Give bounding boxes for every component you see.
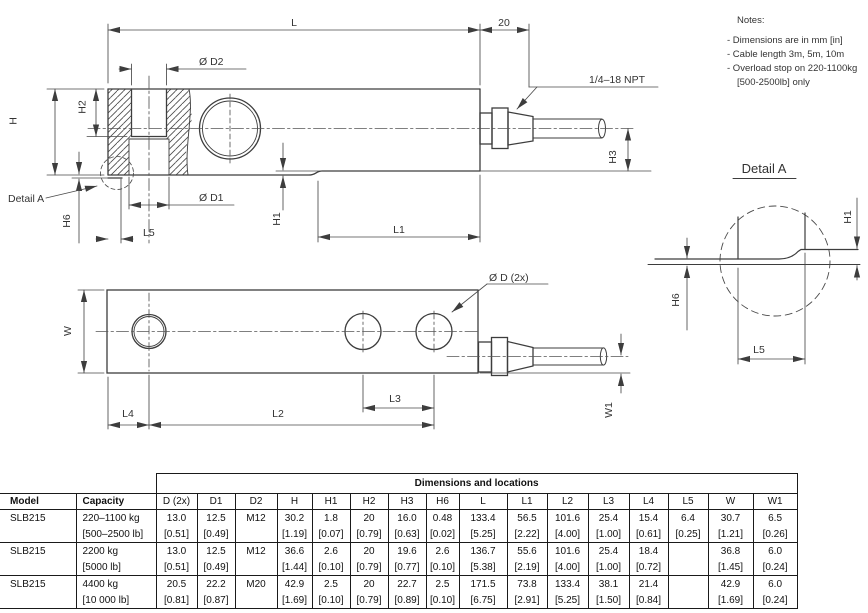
- cell: 20: [350, 510, 388, 527]
- table-group-header-row: Dimensions and locations: [0, 474, 797, 494]
- cell: 30.2: [277, 510, 312, 527]
- col-header: L: [459, 494, 507, 510]
- cell: 2.5: [426, 576, 459, 593]
- dimension-table: Dimensions and locations Model Capacity …: [0, 473, 798, 609]
- cell: 2.6: [426, 543, 459, 560]
- npt-label: 1/4–18 NPT: [589, 74, 646, 86]
- cell: 6.4: [668, 510, 708, 527]
- notes-line-2: - Cable length 3m, 5m, 10m: [727, 49, 844, 60]
- cell: [0.24]: [753, 592, 797, 609]
- detail-a-ref-label: Detail A: [8, 193, 44, 205]
- cell: [0.79]: [350, 592, 388, 609]
- cell: 56.5: [507, 510, 547, 527]
- detail-a-profile: [648, 213, 860, 265]
- dim-label-l4: L4: [122, 408, 134, 420]
- col-header: L1: [507, 494, 547, 510]
- cell: 6.0: [753, 576, 797, 593]
- cell: [0.72]: [629, 559, 668, 576]
- cell-model: SLB215: [0, 576, 76, 593]
- cell: 21.4: [629, 576, 668, 593]
- dimensions-side: [46, 24, 658, 243]
- table-row: SLB215 220–1100 kg 13.0 12.5 M12 30.2 1.…: [0, 510, 797, 527]
- cell-model: [0, 592, 76, 609]
- dim-label-20: 20: [498, 17, 510, 29]
- col-header: L5: [668, 494, 708, 510]
- cell: 25.4: [588, 510, 629, 527]
- dim-label-l3: L3: [389, 393, 401, 405]
- cell-capacity: 4400 kg: [76, 576, 156, 593]
- cell: 12.5: [197, 543, 235, 560]
- col-header: H6: [426, 494, 459, 510]
- notes-block: Notes: - Dimensions are in mm [in] - Cab…: [727, 15, 857, 88]
- col-header: W1: [753, 494, 797, 510]
- dim-label-d2: Ø D2: [199, 56, 224, 68]
- dim-label-h6: H6: [61, 214, 73, 228]
- col-header: L2: [547, 494, 588, 510]
- cell: [1.44]: [277, 559, 312, 576]
- cell: 20.5: [156, 576, 197, 593]
- detail-dim-h1: H1: [842, 210, 854, 224]
- cell: 25.4: [588, 543, 629, 560]
- cell: 38.1: [588, 576, 629, 593]
- cell: 136.7: [459, 543, 507, 560]
- cell: 30.7: [708, 510, 753, 527]
- cell: [0.10]: [426, 559, 459, 576]
- notes-line-4: [500-2500lb] only: [737, 77, 810, 88]
- detail-a-view: Detail A H1 H6 L5: [648, 161, 860, 364]
- cell-capacity: 220–1100 kg: [76, 510, 156, 527]
- cell: 18.4: [629, 543, 668, 560]
- col-header: D1: [197, 494, 235, 510]
- dim-label-h3: H3: [607, 150, 619, 164]
- cell: 101.6: [547, 510, 588, 527]
- dim-label-w: W: [62, 326, 74, 336]
- col-header: W: [708, 494, 753, 510]
- cell: [5.25]: [547, 592, 588, 609]
- detail-a-boundary: [720, 206, 830, 316]
- detail-a-title: Detail A: [742, 161, 787, 176]
- cell: [235, 592, 277, 609]
- cell-capacity: [500–2500 lb]: [76, 526, 156, 543]
- cell: [5.38]: [459, 559, 507, 576]
- dim-label-w1: W1: [603, 402, 615, 418]
- cell: 15.4: [629, 510, 668, 527]
- technical-drawing: L 20 Ø D2 1/4–18 NPT H H2 Detail A Ø D1 …: [0, 0, 868, 470]
- cell: 1.8: [312, 510, 350, 527]
- cell: [1.69]: [277, 592, 312, 609]
- cell: 19.6: [388, 543, 426, 560]
- dim-label-l1: L1: [393, 224, 405, 236]
- cell: [0.84]: [629, 592, 668, 609]
- cell: [0.79]: [350, 559, 388, 576]
- table-row: SLB215 4400 kg 20.5 22.2 M20 42.9 2.5 20…: [0, 576, 797, 593]
- cell: [0.24]: [753, 559, 797, 576]
- col-header: D2: [235, 494, 277, 510]
- detail-dim-l5: L5: [753, 344, 765, 356]
- cell: [0.07]: [312, 526, 350, 543]
- cell: 20: [350, 576, 388, 593]
- cell: [1.69]: [708, 592, 753, 609]
- col-header: H: [277, 494, 312, 510]
- cell: [0.10]: [312, 559, 350, 576]
- cell: 42.9: [277, 576, 312, 593]
- cell: [2.19]: [507, 559, 547, 576]
- cell: [0.49]: [197, 559, 235, 576]
- top-view: W Ø D (2x) L4 L2 L3 W1: [62, 272, 630, 429]
- cell: 133.4: [547, 576, 588, 593]
- cell: [1.00]: [588, 526, 629, 543]
- cell: [4.00]: [547, 559, 588, 576]
- cell: 12.5: [197, 510, 235, 527]
- col-header: H1: [312, 494, 350, 510]
- cell: [1.00]: [588, 559, 629, 576]
- cell: 13.0: [156, 510, 197, 527]
- cell: [5.25]: [459, 526, 507, 543]
- cell: 16.0: [388, 510, 426, 527]
- cell: 13.0: [156, 543, 197, 560]
- hatch-right: [167, 89, 193, 175]
- cell: [2.22]: [507, 526, 547, 543]
- cell: [6.75]: [459, 592, 507, 609]
- cell: [0.79]: [350, 526, 388, 543]
- cell: 36.6: [277, 543, 312, 560]
- cell: M12: [235, 510, 277, 527]
- col-header: H3: [388, 494, 426, 510]
- cell: [4.00]: [547, 526, 588, 543]
- cell: [668, 543, 708, 560]
- cell: [1.21]: [708, 526, 753, 543]
- cell: [668, 576, 708, 593]
- cell: 42.9: [708, 576, 753, 593]
- side-view: L 20 Ø D2 1/4–18 NPT H H2 Detail A Ø D1 …: [8, 17, 659, 243]
- cell: 133.4: [459, 510, 507, 527]
- dim-label-h1: H1: [271, 212, 283, 226]
- centerlines-top: [96, 293, 628, 371]
- top-view-outline: [107, 290, 607, 376]
- table-header-row: Model Capacity D (2x) D1 D2 H H1 H2 H3 H…: [0, 494, 797, 510]
- group-header: Dimensions and locations: [156, 474, 797, 494]
- cell: [0.25]: [668, 526, 708, 543]
- notes-line-3: - Overload stop on 220-1100kg: [727, 63, 857, 74]
- cell: [0.87]: [197, 592, 235, 609]
- cell: [0.51]: [156, 526, 197, 543]
- cell: 101.6: [547, 543, 588, 560]
- cell: [1.19]: [277, 526, 312, 543]
- cell: 6.5: [753, 510, 797, 527]
- detail-dim-h6: H6: [670, 293, 682, 307]
- cell: [0.10]: [426, 592, 459, 609]
- cell-capacity: [5000 lb]: [76, 559, 156, 576]
- hatch-left: [108, 89, 132, 175]
- cell: [0.10]: [312, 592, 350, 609]
- notes-line-1: - Dimensions are in mm [in]: [727, 35, 843, 46]
- cell: [0.02]: [426, 526, 459, 543]
- cell: [668, 592, 708, 609]
- dim-label-h: H: [8, 117, 20, 125]
- cell-model: SLB215: [0, 543, 76, 560]
- dim-label-l: L: [291, 17, 297, 29]
- cell: 36.8: [708, 543, 753, 560]
- cell-model: SLB215: [0, 510, 76, 527]
- cell-model: [0, 559, 76, 576]
- table-row: [500–2500 lb] [0.51] [0.49] [1.19] [0.07…: [0, 526, 797, 543]
- cell: [2.91]: [507, 592, 547, 609]
- cell: [0.26]: [753, 526, 797, 543]
- cell: 171.5: [459, 576, 507, 593]
- cell: 6.0: [753, 543, 797, 560]
- dim-label-l5: L5: [143, 227, 155, 239]
- col-header-capacity: Capacity: [76, 494, 156, 510]
- cell: [1.50]: [588, 592, 629, 609]
- cell: 22.2: [197, 576, 235, 593]
- cell: [235, 559, 277, 576]
- cell-model: [0, 526, 76, 543]
- cell: 0.48: [426, 510, 459, 527]
- cell: 20: [350, 543, 388, 560]
- col-header: H2: [350, 494, 388, 510]
- cell: 2.5: [312, 576, 350, 593]
- dim-label-l2: L2: [272, 408, 284, 420]
- dim-label-h2: H2: [77, 100, 89, 114]
- cell: [0.61]: [629, 526, 668, 543]
- col-header: D (2x): [156, 494, 197, 510]
- cell: 55.6: [507, 543, 547, 560]
- cell-capacity: 2200 kg: [76, 543, 156, 560]
- cell: 73.8: [507, 576, 547, 593]
- dim-label-d1: Ø D1: [199, 192, 224, 204]
- cell: 22.7: [388, 576, 426, 593]
- cell: [1.45]: [708, 559, 753, 576]
- cell-capacity: [10 000 lb]: [76, 592, 156, 609]
- col-header-model: Model: [0, 494, 76, 510]
- cell: [235, 526, 277, 543]
- datasheet-page: L 20 Ø D2 1/4–18 NPT H H2 Detail A Ø D1 …: [0, 0, 868, 613]
- table-row: SLB215 2200 kg 13.0 12.5 M12 36.6 2.6 20…: [0, 543, 797, 560]
- cell: [0.49]: [197, 526, 235, 543]
- cell: [0.81]: [156, 592, 197, 609]
- dimensions-top: [78, 284, 630, 429]
- cell: 2.6: [312, 543, 350, 560]
- cell: [668, 559, 708, 576]
- table-row: [10 000 lb] [0.81] [0.87] [1.69] [0.10] …: [0, 592, 797, 609]
- dim-label-d: Ø D (2x): [489, 272, 529, 284]
- cell: [0.51]: [156, 559, 197, 576]
- table-row: [5000 lb] [0.51] [0.49] [1.44] [0.10] [0…: [0, 559, 797, 576]
- cell: M12: [235, 543, 277, 560]
- cell: M20: [235, 576, 277, 593]
- col-header: L3: [588, 494, 629, 510]
- cell: [0.77]: [388, 559, 426, 576]
- detail-a-dims: [687, 198, 857, 364]
- cell: [0.63]: [388, 526, 426, 543]
- col-header: L4: [629, 494, 668, 510]
- notes-title: Notes:: [737, 15, 764, 26]
- cell: [0.89]: [388, 592, 426, 609]
